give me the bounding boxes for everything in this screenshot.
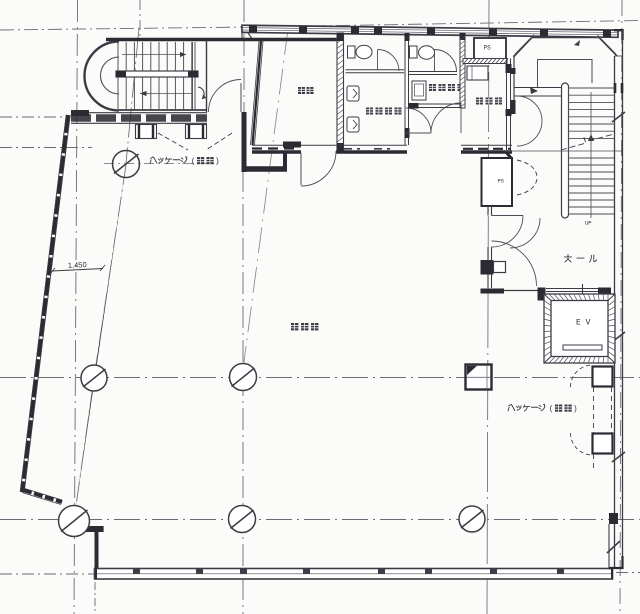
svg-text:1,450: 1,450 xyxy=(68,260,87,270)
svg-text:PS: PS xyxy=(498,178,505,185)
svg-text:): ) xyxy=(574,403,577,413)
svg-text:UP: UP xyxy=(585,220,592,227)
svg-text:PS: PS xyxy=(484,45,492,52)
svg-text:(: ( xyxy=(192,156,195,166)
svg-text:E V: E V xyxy=(576,319,591,328)
svg-text:(: ( xyxy=(550,403,553,413)
svg-text:): ) xyxy=(216,156,219,166)
